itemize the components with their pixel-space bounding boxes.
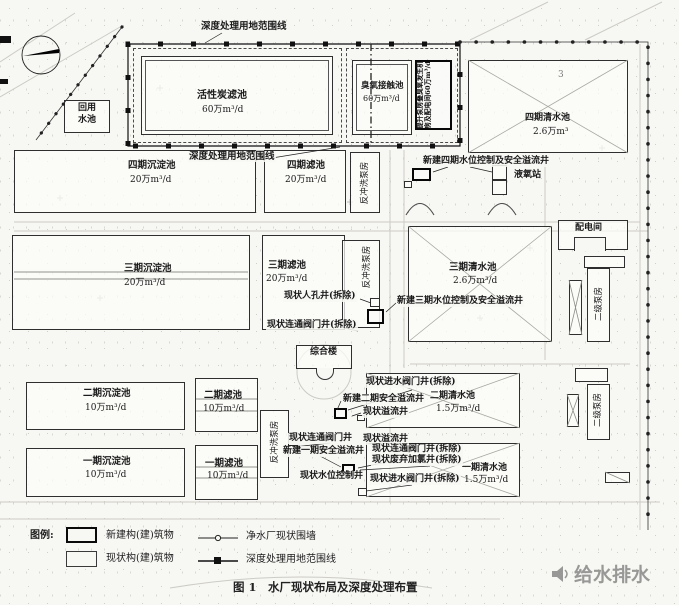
backwash-pump-2-label: 反冲洗泵房 [360, 237, 372, 297]
secondary-pump-house-1-head [584, 256, 625, 268]
legend-fence-label: 净水厂现状围墙 [246, 531, 316, 543]
legend-existing-structure-label: 现状构(建)筑物 [106, 553, 174, 565]
phase4-sed-name: 四期沉淀池 [128, 160, 176, 171]
secondary-pump-2-channel [567, 394, 579, 427]
phase2-filter-capacity: 10万m³/d [203, 404, 244, 415]
legend-new-structure-label: 新建构(建)筑物 [106, 530, 174, 542]
complex-building-arch [316, 368, 334, 380]
phase4-clearwater-capacity: 2.6万m³ [533, 127, 568, 138]
secondary-pump-1-channel [569, 280, 582, 335]
phase4-sed-capacity: 20万m³/d [130, 175, 171, 186]
edge-marks [0, 36, 11, 84]
phase3-overflow-well-box [367, 309, 384, 324]
new-phase1-overflow-label: 新建一期安全溢流井 [282, 446, 365, 457]
phase2-clearwater-name: 二期清水池 [430, 391, 475, 402]
watermark: 给水排水 [549, 560, 650, 587]
reuse-tank-line1: 回用 [78, 103, 96, 114]
legend-new-structure-icon [66, 527, 97, 543]
reuse-tank-line2: 水池 [78, 115, 96, 126]
power-room-label: 配电间 [575, 223, 602, 234]
new-phase2-overflow-label: 新建二期安全溢流井 [342, 394, 425, 405]
ozone-contact-capacity: 60万m³/d [363, 94, 400, 104]
phase2-filter-name: 二期滤池 [204, 390, 242, 401]
megaphone-icon [549, 563, 571, 585]
activated-carbon-capacity: 60万m³/d [202, 105, 243, 116]
legend-boundary-label: 深度处理用地范围线 [246, 554, 336, 566]
activated-carbon-name: 活性炭滤池 [197, 90, 247, 102]
deep-boundary-label-top: 深度处理用地范围线 [201, 21, 287, 32]
secondary-pump-2-label: 二级泵房 [591, 380, 603, 440]
watermark-text: 给水排水 [574, 560, 650, 587]
phase4-clearwater-tank [468, 60, 628, 153]
existing-connect-valve-label: 现状连通阀门井 [288, 433, 353, 444]
phase3-overflow-label: 新建三期水位控制及安全溢流井 [396, 296, 524, 307]
power-room-notch [574, 237, 606, 251]
phase2-overflow-well-box [334, 408, 347, 419]
secondary-pump-1-label: 二级泵房 [592, 274, 604, 334]
curb-arcs [406, 204, 516, 216]
small-well-1 [404, 181, 412, 188]
liquid-oxygen-well-lower [492, 180, 507, 195]
phase4-filter-capacity: 20万m³/d [285, 175, 326, 186]
phase1-filter-capacity: 10万m³/d [207, 471, 248, 482]
liquid-oxygen-label: 液氧站 [514, 170, 541, 181]
phase1-sed-capacity: 10万m³/d [85, 470, 126, 481]
phase4-overflow-label: 新建四期水位控制及安全溢流井 [422, 156, 550, 167]
connect-valve-demolish-label: 现状连通阀门井(拆除) [266, 320, 358, 331]
inlet-valve-demolish-top-label: 现状进水阀门井(拆除) [365, 377, 457, 388]
complex-building-label: 综合楼 [310, 347, 337, 358]
phase1-clearwater-capacity: 1.5万m³/d [464, 475, 508, 486]
phase3-sed-name: 三期沉淀池 [124, 263, 172, 274]
parcel-number: 3 [558, 70, 564, 81]
chlorine-well-demolish-label: 现状废弃加氯井(拆除) [371, 455, 463, 466]
manhole-demolish-label: 现状人孔井(拆除) [283, 291, 357, 302]
phase3-sed-capacity: 20万m³/d [124, 278, 165, 289]
phase4-clearwater-name: 四期清水池 [525, 113, 570, 124]
legend-existing-structure-icon [66, 551, 97, 567]
liquid-oxygen-well-upper [492, 165, 507, 180]
legend-fence-symbol [198, 535, 238, 540]
legend-title: 图例: [30, 530, 54, 542]
small-well-3 [358, 488, 367, 496]
deep-boundary-label-mid: 深度处理用地范围线 [188, 151, 276, 162]
manhole-well [370, 298, 380, 307]
phase2-sed-name: 二期沉淀池 [83, 388, 131, 399]
phase3-filter-name: 三期滤池 [268, 260, 306, 271]
phase1-filter-name: 一期滤池 [205, 458, 243, 469]
phase2-sed-capacity: 10万m³/d [85, 403, 126, 414]
phase3-clearwater-capacity: 2.6万m³/d [453, 276, 497, 287]
water-level-well-label: 现状水位控制井 [299, 471, 364, 482]
phase4-filter-name: 四期滤池 [287, 160, 325, 171]
site-plan: 深度处理用地范围线 深度处理用地范围线 活性炭滤池 60万m³/d 回用 水池 … [0, 0, 679, 605]
existing-overflow-a-label: 现状溢流井 [362, 407, 409, 418]
connect-valve-demolish-2-label: 现状连通阀门井(拆除) [371, 444, 463, 455]
phase1-sed-name: 一期沉淀池 [83, 456, 131, 467]
ozone-contact-name: 臭氧接触池 [361, 81, 404, 91]
phase3-filter-capacity: 20万m³/d [266, 274, 307, 285]
backwash-pump-1-label: 反冲洗泵房 [358, 153, 370, 213]
backwash-pump-3-label: 反冲洗泵房 [268, 412, 280, 472]
legend-boundary-symbol [198, 557, 238, 564]
inlet-valve-demolish-bottom-label: 现状进水阀门井(拆除) [369, 474, 461, 485]
phase3-clearwater-name: 三期清水池 [449, 262, 497, 273]
phase2-clearwater-capacity: 1.5万m³/d [436, 404, 480, 415]
phase1-clearwater-name: 一期清水池 [462, 463, 507, 474]
north-arrow-icon [22, 36, 60, 74]
small-structure-bottom-right [605, 472, 630, 483]
figure-caption: 图 1 水厂现状布局及深度处理布置 [233, 579, 418, 595]
phase4-overflow-well-box [412, 168, 431, 181]
lift-pump-complex-label: 提升泵房叠臭氧发生机房及配电间60万m³/d [416, 61, 450, 129]
